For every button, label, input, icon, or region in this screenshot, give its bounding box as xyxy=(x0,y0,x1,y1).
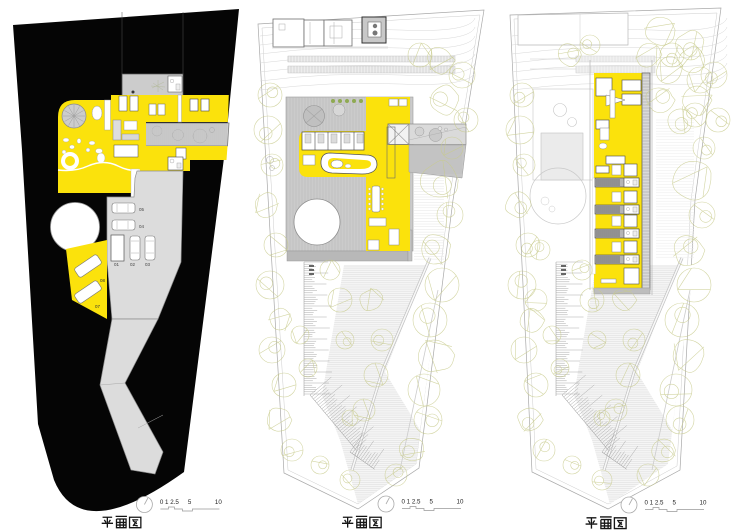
svg-text:10: 10 xyxy=(700,500,707,507)
svg-text:08: 08 xyxy=(100,278,106,283)
svg-text:04: 04 xyxy=(139,224,145,229)
svg-text:10: 10 xyxy=(457,499,464,506)
svg-text:07: 07 xyxy=(95,304,101,309)
svg-text:0 1 2.5: 0 1 2.5 xyxy=(645,500,664,507)
svg-text:03: 03 xyxy=(145,262,151,267)
svg-text:0 1 2.5: 0 1 2.5 xyxy=(160,499,179,506)
svg-text:5: 5 xyxy=(673,500,677,507)
svg-text:0 1 2.5: 0 1 2.5 xyxy=(402,499,421,506)
svg-text:01: 01 xyxy=(114,262,120,267)
svg-text:5: 5 xyxy=(188,499,192,506)
svg-text:5: 5 xyxy=(430,499,434,506)
svg-text:10: 10 xyxy=(215,499,222,506)
svg-text:05: 05 xyxy=(139,207,145,212)
svg-text:02: 02 xyxy=(130,262,136,267)
